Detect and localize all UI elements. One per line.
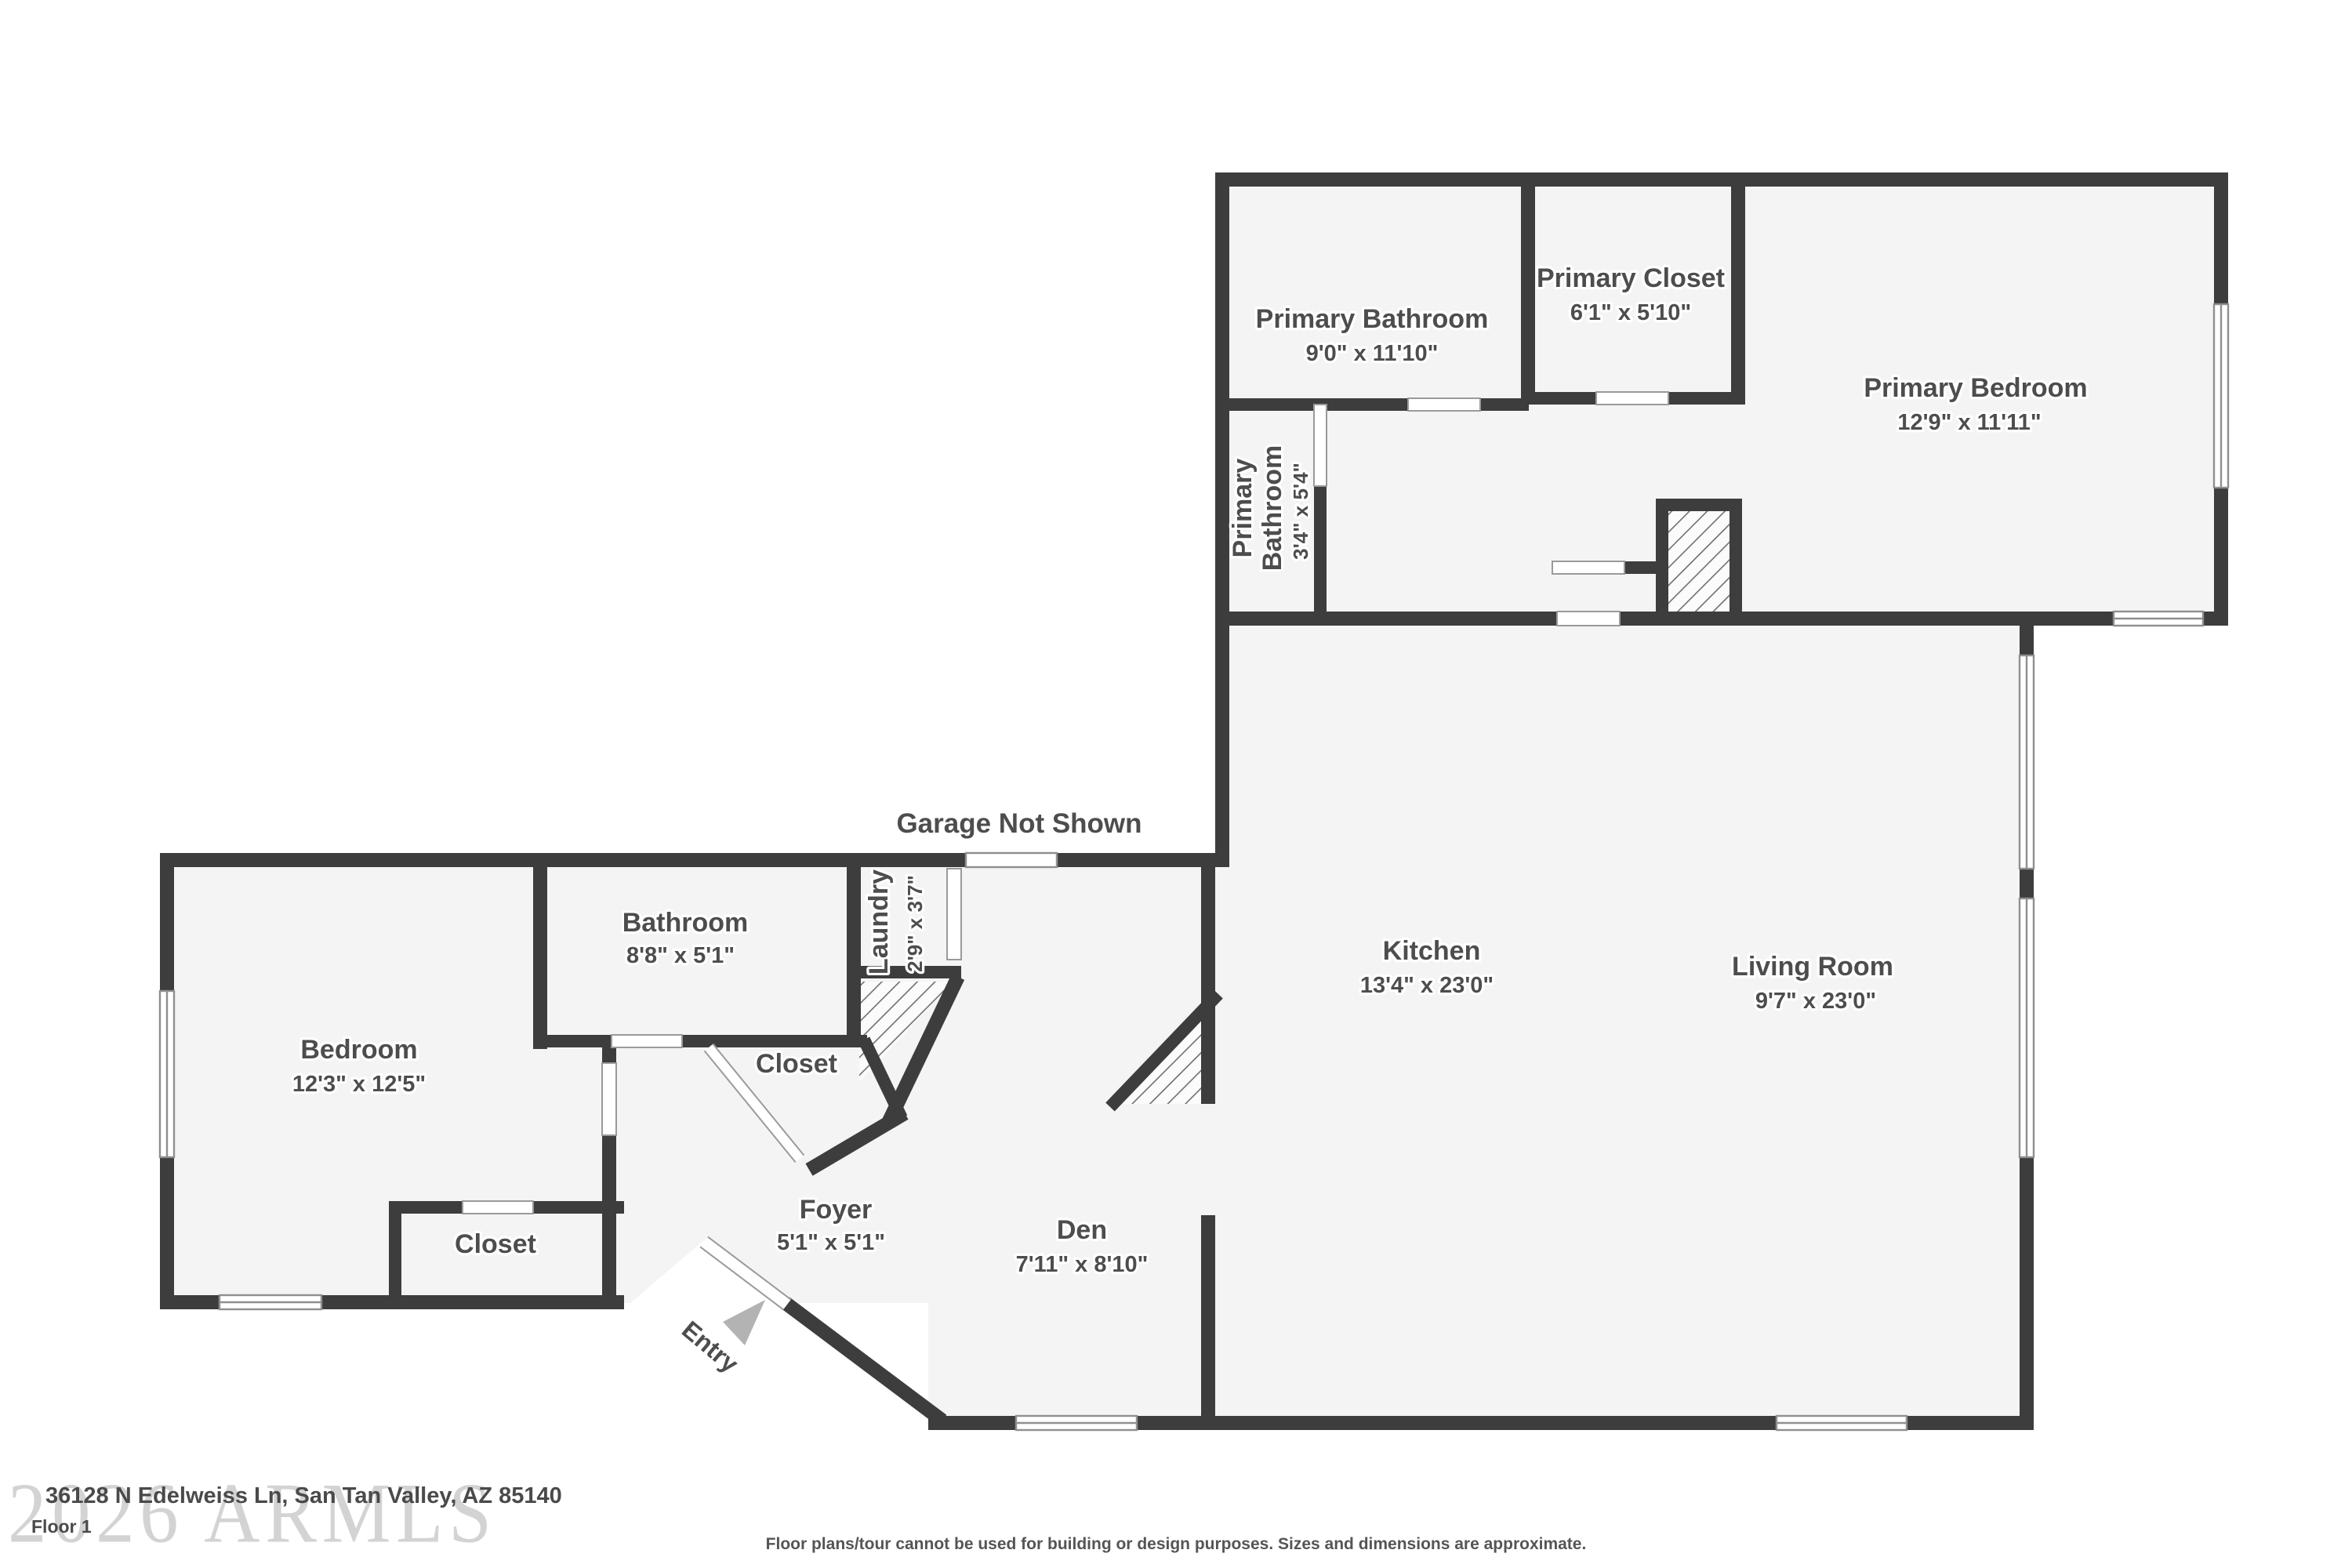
room-label-living-room: Living Room: [1732, 952, 1893, 982]
room-label-primary-bathroom-small-2: Bathroom: [1258, 445, 1287, 572]
floor-plan-canvas: Primary Bathroom 9'0" x 11'10" Primary C…: [0, 0, 2352, 1568]
room-dims-foyer: 5'1" x 5'1": [777, 1230, 885, 1255]
room-dims-den: 7'11" x 8'10": [1016, 1252, 1149, 1277]
room-dims-primary-bathroom: 9'0" x 11'10": [1306, 341, 1439, 366]
room-label-primary-bathroom: Primary Bathroom: [1256, 304, 1489, 334]
room-floors: [160, 172, 2228, 1490]
room-dims-primary-closet: 6'1" x 5'10": [1570, 300, 1691, 325]
room-label-primary-bathroom-small-1: Primary: [1228, 459, 1258, 558]
room-label-foyer: Foyer: [800, 1195, 873, 1225]
floor-plan: Primary Bathroom 9'0" x 11'10" Primary C…: [0, 0, 2352, 1568]
room-dims-primary-bedroom: 12'9" x 11'11": [1897, 410, 2041, 435]
room-dims-kitchen: 13'4" x 23'0": [1360, 973, 1494, 998]
room-label-primary-closet: Primary Closet: [1537, 263, 1725, 293]
room-label-kitchen: Kitchen: [1383, 936, 1481, 966]
room-dims-bathroom: 8'8" x 5'1": [626, 943, 735, 968]
floor-label: Floor 1: [31, 1516, 92, 1537]
room-dims-bedroom: 12'3" x 12'5": [292, 1072, 426, 1097]
room-dims-living-room: 9'7" x 23'0": [1755, 989, 1876, 1014]
room-label-bedroom: Bedroom: [300, 1035, 417, 1065]
room-label-primary-bedroom: Primary Bedroom: [1864, 373, 2087, 403]
room-label-laundry: Laundry: [864, 869, 894, 975]
property-address: 36128 N Edelweiss Ln, San Tan Valley, AZ…: [45, 1483, 562, 1509]
room-label-den: Den: [1057, 1215, 1107, 1245]
room-label-closet-middle: Closet: [756, 1049, 837, 1079]
room-label-closet-left: Closet: [455, 1229, 536, 1259]
room-dims-laundry: 2'9" x 3'7": [903, 875, 927, 972]
room-label-bathroom: Bathroom: [622, 908, 749, 938]
room-dims-primary-bathroom-small: 3'4" x 5'4": [1289, 463, 1312, 560]
garage-note: Garage Not Shown: [896, 808, 1142, 839]
garage-opening: [966, 853, 1057, 867]
disclaimer-text: Floor plans/tour cannot be used for buil…: [0, 1535, 2352, 1554]
